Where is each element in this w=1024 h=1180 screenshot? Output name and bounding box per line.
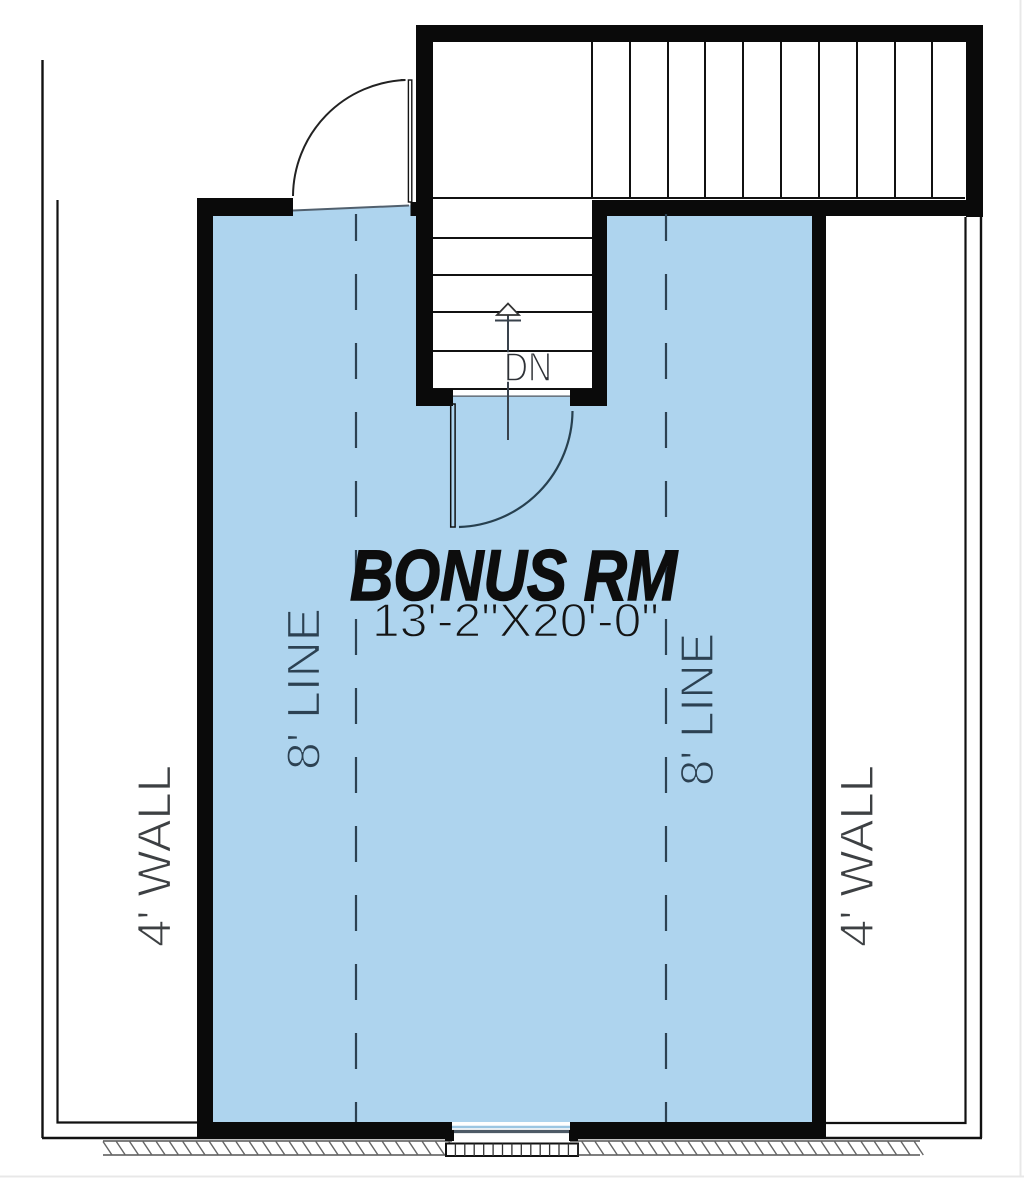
svg-text:DN: DN	[504, 344, 552, 390]
svg-text:13'-2"X20'-0": 13'-2"X20'-0"	[372, 594, 659, 647]
svg-text:4' WALL: 4' WALL	[830, 765, 883, 947]
svg-text:4' WALL: 4' WALL	[127, 765, 180, 947]
svg-text:8' LINE: 8' LINE	[671, 633, 723, 786]
svg-text:8' LINE: 8' LINE	[278, 608, 330, 770]
